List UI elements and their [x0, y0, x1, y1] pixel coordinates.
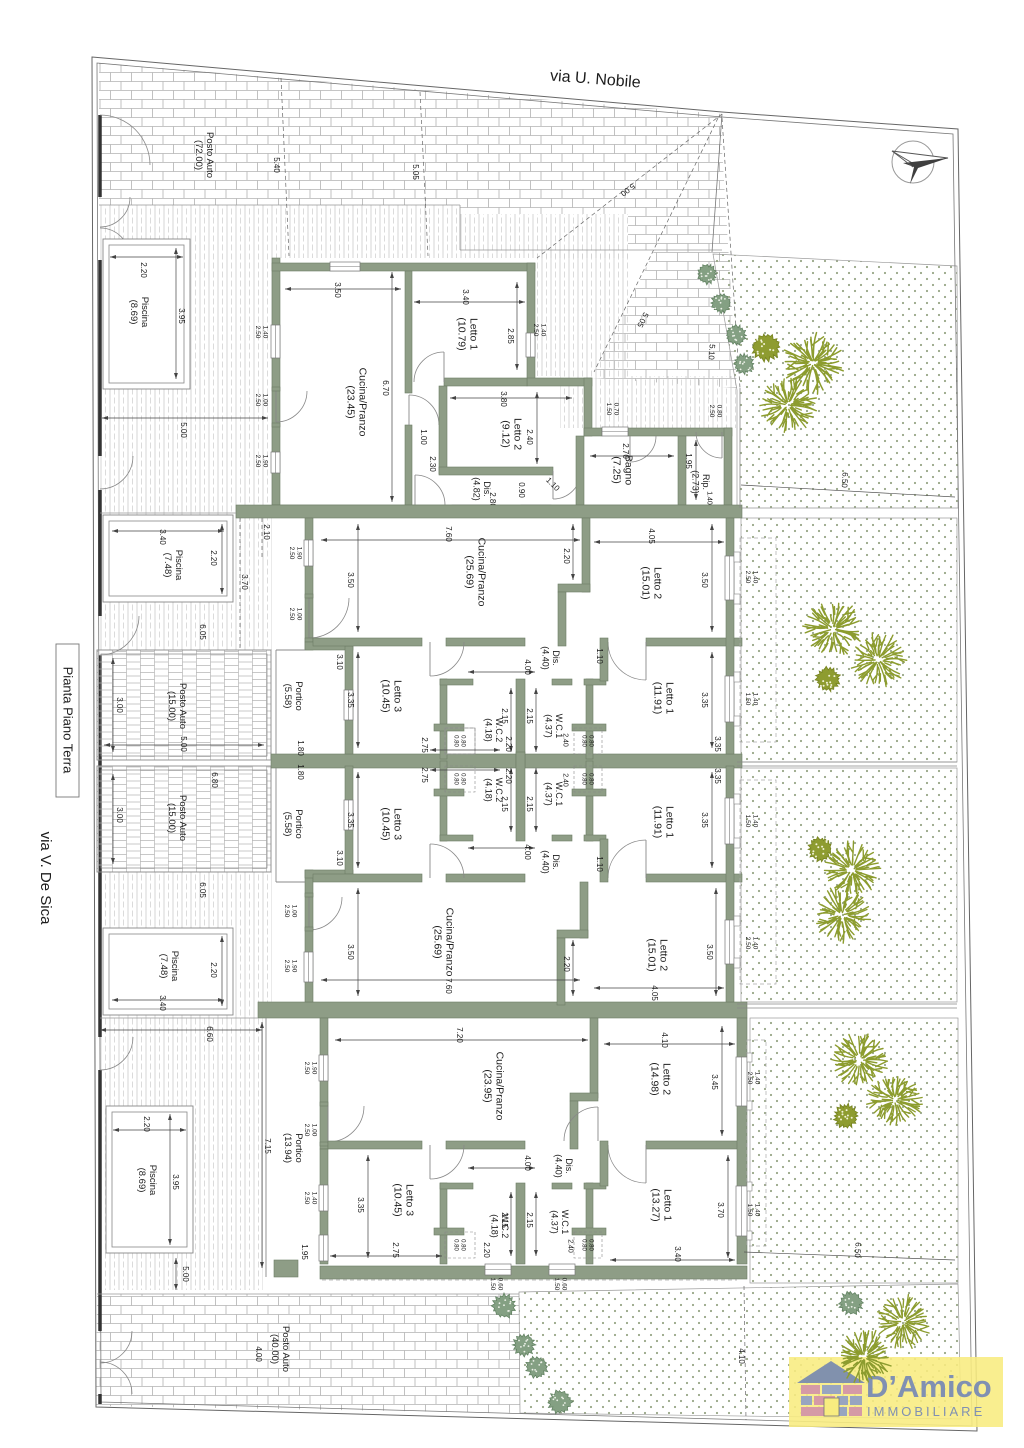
svg-text:2.15: 2.15 [525, 796, 534, 812]
svg-text:(40.00): (40.00) [269, 1334, 280, 1364]
svg-text:Cucina/Pranzo: Cucina/Pranzo [475, 538, 487, 607]
svg-text:Letto 1: Letto 1 [467, 318, 479, 350]
svg-text:(5.58): (5.58) [282, 684, 293, 709]
svg-text:(7.25): (7.25) [610, 456, 622, 483]
svg-text:3.80: 3.80 [499, 391, 508, 407]
svg-text:4.00: 4.00 [523, 1155, 532, 1171]
svg-text:3.35: 3.35 [700, 692, 709, 708]
svg-text:0.60: 0.60 [561, 1278, 568, 1291]
svg-text:2.10: 2.10 [262, 524, 271, 540]
svg-text:Pianta Piano Terra: Pianta Piano Terra [61, 667, 76, 774]
svg-text:1.50: 1.50 [746, 1204, 753, 1217]
svg-text:3.35: 3.35 [346, 692, 355, 708]
svg-text:W.C.1: W.C.1 [560, 1210, 570, 1235]
svg-text:Dis.: Dis. [551, 650, 561, 666]
svg-text:Letto 3: Letto 3 [403, 1184, 415, 1216]
svg-text:1.80: 1.80 [296, 764, 305, 780]
svg-text:(23.95): (23.95) [481, 1069, 493, 1102]
svg-text:2.50: 2.50 [283, 905, 290, 918]
svg-text:1.00: 1.00 [291, 905, 298, 918]
svg-text:2.75: 2.75 [391, 1242, 400, 1258]
svg-text:(72.00): (72.00) [193, 140, 204, 170]
svg-text:2.20: 2.20 [482, 1242, 491, 1258]
svg-text:1.40: 1.40 [262, 326, 269, 339]
svg-text:3.40: 3.40 [461, 289, 470, 305]
svg-text:1.00: 1.00 [262, 394, 269, 407]
svg-text:3.10: 3.10 [335, 654, 344, 670]
svg-text:5.10: 5.10 [707, 344, 717, 361]
svg-text:(23.45): (23.45) [344, 385, 356, 418]
svg-text:Letto 1: Letto 1 [663, 806, 675, 838]
svg-text:2.50: 2.50 [283, 960, 290, 973]
svg-text:1.40: 1.40 [752, 693, 759, 706]
svg-text:2.15: 2.15 [525, 708, 534, 724]
svg-text:2.50: 2.50 [532, 324, 539, 337]
svg-text:7.60: 7.60 [444, 978, 453, 994]
svg-text:1.90: 1.90 [311, 1062, 318, 1075]
svg-text:IMMOBILIARE: IMMOBILIARE [867, 1404, 985, 1419]
svg-text:Portico: Portico [293, 681, 304, 711]
svg-text:3.50: 3.50 [705, 944, 714, 960]
svg-text:(13.94): (13.94) [282, 1133, 293, 1163]
svg-text:2.20: 2.20 [504, 768, 513, 784]
svg-text:1.40: 1.40 [752, 937, 759, 950]
svg-text:(10.79): (10.79) [455, 317, 467, 350]
svg-text:0.70: 0.70 [613, 403, 620, 416]
svg-text:1.90: 1.90 [291, 960, 298, 973]
svg-text:1.00: 1.00 [419, 429, 428, 445]
svg-text:2.15: 2.15 [525, 1212, 534, 1228]
svg-text:3.70: 3.70 [240, 574, 249, 590]
svg-text:Dis.: Dis. [551, 854, 561, 870]
svg-text:1.00: 1.00 [311, 1124, 318, 1137]
svg-text:2.20: 2.20 [504, 736, 513, 752]
svg-text:(10.45): (10.45) [391, 1183, 403, 1216]
svg-text:(25.69): (25.69) [431, 925, 443, 958]
svg-text:2.20: 2.20 [562, 956, 571, 972]
svg-text:6.05: 6.05 [198, 882, 207, 898]
svg-text:(11.91): (11.91) [651, 682, 663, 715]
svg-text:(5.58): (5.58) [282, 812, 293, 837]
svg-text:Portico: Portico [293, 809, 304, 839]
svg-text:(15.00): (15.00) [166, 691, 177, 721]
svg-text:via V. De Sica: via V. De Sica [37, 832, 54, 925]
svg-text:(4.40): (4.40) [541, 646, 551, 670]
svg-text:Piscina: Piscina [173, 550, 184, 581]
svg-text:(11.91): (11.91) [651, 806, 663, 839]
svg-text:3.35: 3.35 [700, 812, 709, 828]
svg-text:2.75: 2.75 [420, 767, 429, 783]
svg-text:0.80: 0.80 [459, 735, 465, 747]
svg-text:5.00: 5.00 [179, 736, 188, 752]
svg-text:2.50: 2.50 [303, 1124, 310, 1137]
svg-text:2.50: 2.50 [254, 455, 261, 468]
svg-text:2.50: 2.50 [708, 405, 715, 418]
svg-text:(4.18): (4.18) [484, 778, 494, 802]
svg-text:0.80: 0.80 [587, 1239, 593, 1251]
svg-text:2.40: 2.40 [562, 733, 569, 747]
svg-text:Posto Auto: Posto Auto [177, 683, 188, 729]
svg-text:2.50: 2.50 [254, 326, 261, 339]
svg-text:5.00: 5.00 [179, 422, 188, 438]
svg-text:6.70: 6.70 [381, 380, 390, 396]
svg-text:1.40: 1.40 [540, 324, 547, 337]
svg-text:2.20: 2.20 [209, 550, 218, 566]
svg-text:Rip.: Rip. [701, 474, 711, 490]
svg-text:0.90: 0.90 [517, 482, 526, 498]
svg-text:1.40: 1.40 [754, 1204, 761, 1217]
svg-text:5.05: 5.05 [411, 164, 420, 180]
svg-text:(14.98): (14.98) [648, 1062, 660, 1095]
svg-text:1.90: 1.90 [296, 547, 303, 560]
svg-text:(10.45): (10.45) [379, 679, 391, 712]
svg-text:7.20: 7.20 [455, 1027, 464, 1043]
svg-text:3.10: 3.10 [335, 850, 344, 866]
svg-text:2.50: 2.50 [288, 547, 295, 560]
svg-text:3.95: 3.95 [171, 1174, 180, 1190]
svg-text:6.60: 6.60 [205, 1026, 214, 1042]
svg-text:4.00: 4.00 [523, 659, 532, 675]
svg-text:Letto 3: Letto 3 [391, 808, 403, 840]
svg-text:6.50: 6.50 [840, 472, 850, 489]
svg-text:2.40: 2.40 [525, 429, 534, 445]
svg-text:Letto 1: Letto 1 [661, 1189, 673, 1221]
svg-text:5.00: 5.00 [181, 1266, 190, 1282]
svg-text:1.10: 1.10 [595, 856, 604, 872]
svg-text:(4.18): (4.18) [484, 718, 494, 742]
svg-text:(4.37): (4.37) [544, 714, 554, 738]
svg-text:6.05: 6.05 [198, 624, 207, 640]
svg-text:3.00: 3.00 [115, 697, 124, 713]
svg-text:1.95: 1.95 [300, 1244, 309, 1260]
svg-text:(25.69): (25.69) [463, 555, 475, 588]
svg-text:0.80: 0.80 [587, 773, 593, 785]
svg-text:3.50: 3.50 [346, 572, 355, 588]
svg-text:0.80: 0.80 [587, 735, 593, 747]
svg-text:2.20: 2.20 [562, 548, 571, 564]
svg-text:7.60: 7.60 [444, 526, 453, 542]
svg-text:(8.69): (8.69) [136, 1168, 147, 1193]
svg-text:2.50: 2.50 [303, 1192, 310, 1205]
svg-text:2.50: 2.50 [303, 1062, 310, 1075]
svg-text:2.15: 2.15 [500, 796, 509, 812]
svg-text:1.50: 1.50 [553, 1278, 560, 1291]
svg-text:7.15: 7.15 [263, 1138, 272, 1154]
svg-text:3.00: 3.00 [115, 807, 124, 823]
svg-text:6.50: 6.50 [853, 1242, 863, 1259]
svg-text:4.10: 4.10 [737, 1348, 746, 1364]
svg-text:3.50: 3.50 [346, 944, 355, 960]
svg-text:4.00: 4.00 [254, 1346, 263, 1362]
svg-text:2.15: 2.15 [500, 708, 509, 724]
svg-text:3.40: 3.40 [158, 529, 167, 545]
svg-text:1.95: 1.95 [684, 453, 693, 469]
svg-text:Dis.: Dis. [564, 1158, 574, 1174]
svg-text:1.00: 1.00 [296, 608, 303, 621]
svg-text:Piscina: Piscina [139, 297, 150, 328]
svg-text:1.10: 1.10 [595, 648, 604, 664]
svg-text:Cucina/Pranzo: Cucina/Pranzo [356, 368, 368, 437]
svg-text:3.45: 3.45 [710, 1074, 719, 1090]
svg-text:3.40: 3.40 [673, 1246, 682, 1262]
svg-text:0.60: 0.60 [497, 1278, 504, 1291]
svg-text:1.40: 1.40 [754, 1072, 761, 1085]
svg-text:(4.40): (4.40) [541, 850, 551, 874]
svg-text:(8.69): (8.69) [128, 300, 139, 325]
svg-text:5.40: 5.40 [272, 157, 281, 173]
svg-text:(4.18): (4.18) [490, 1214, 500, 1238]
svg-text:1.80: 1.80 [296, 740, 305, 756]
svg-text:2.75: 2.75 [420, 737, 429, 753]
svg-text:1.40: 1.40 [311, 1192, 318, 1205]
svg-text:4.00: 4.00 [523, 844, 532, 860]
svg-text:1.50: 1.50 [744, 815, 751, 828]
svg-text:1.90: 1.90 [262, 455, 269, 468]
svg-text:4.10: 4.10 [660, 1032, 669, 1048]
svg-text:2.40: 2.40 [567, 1239, 574, 1253]
svg-text:0.80: 0.80 [459, 1239, 465, 1251]
svg-text:0.80: 0.80 [581, 773, 587, 785]
svg-text:3.35: 3.35 [713, 736, 722, 752]
svg-text:Posto Auto: Posto Auto [204, 132, 215, 178]
svg-text:(9.12): (9.12) [499, 420, 511, 447]
svg-text:0.80: 0.80 [716, 405, 723, 418]
svg-text:2.70: 2.70 [621, 443, 630, 459]
svg-text:0.80: 0.80 [453, 735, 459, 747]
svg-text:2.50: 2.50 [254, 394, 261, 407]
svg-text:(7.48): (7.48) [158, 954, 169, 979]
svg-text:3.50: 3.50 [333, 282, 342, 298]
svg-text:3.35: 3.35 [713, 768, 722, 784]
svg-text:(15.00): (15.00) [166, 803, 177, 833]
svg-text:0.80: 0.80 [453, 1239, 459, 1251]
svg-text:Posto Auto: Posto Auto [177, 795, 188, 841]
svg-text:(13.27): (13.27) [649, 1188, 661, 1221]
svg-text:Letto 3: Letto 3 [391, 680, 403, 712]
svg-text:Cucina/Pranzo: Cucina/Pranzo [443, 908, 455, 977]
svg-text:2.50: 2.50 [744, 937, 751, 950]
svg-text:D’Amico: D’Amico [866, 1369, 992, 1404]
svg-text:Piscina: Piscina [169, 951, 180, 982]
svg-text:Letto 2: Letto 2 [660, 1063, 672, 1095]
svg-text:2.50: 2.50 [746, 1072, 753, 1085]
svg-text:(4.37): (4.37) [550, 1210, 560, 1234]
svg-text:2.20: 2.20 [142, 1116, 151, 1132]
svg-text:(4.40): (4.40) [554, 1154, 564, 1178]
svg-text:Letto 1: Letto 1 [663, 682, 675, 714]
svg-text:3.95: 3.95 [177, 308, 186, 324]
svg-text:4.05: 4.05 [650, 985, 659, 1001]
svg-text:Letto 2: Letto 2 [511, 418, 523, 450]
svg-text:2.20: 2.20 [209, 962, 218, 978]
svg-text:2.30: 2.30 [428, 456, 437, 472]
svg-text:3.35: 3.35 [356, 1197, 365, 1213]
svg-text:2.50: 2.50 [744, 571, 751, 584]
svg-text:0.80: 0.80 [581, 1239, 587, 1251]
svg-text:(15.01): (15.01) [639, 566, 651, 599]
svg-text:2.85: 2.85 [506, 328, 515, 344]
svg-text:1.40: 1.40 [752, 571, 759, 584]
svg-text:1.50: 1.50 [489, 1278, 496, 1291]
svg-text:Cucina/Pranzo: Cucina/Pranzo [493, 1052, 505, 1121]
svg-text:3.40: 3.40 [158, 995, 167, 1011]
svg-text:Letto 2: Letto 2 [651, 567, 663, 599]
svg-text:3.70: 3.70 [716, 1202, 725, 1218]
svg-text:6.80: 6.80 [210, 772, 219, 788]
svg-text:Bagno: Bagno [622, 455, 634, 486]
svg-text:1.50: 1.50 [744, 693, 751, 706]
svg-text:2.15: 2.15 [500, 1212, 509, 1228]
svg-text:3.35: 3.35 [346, 812, 355, 828]
svg-text:0.80: 0.80 [581, 735, 587, 747]
svg-text:4.05: 4.05 [647, 528, 656, 544]
svg-text:Letto 2: Letto 2 [657, 939, 669, 971]
svg-text:Portico: Portico [293, 1133, 304, 1163]
svg-text:2.40: 2.40 [562, 773, 569, 787]
svg-text:1.40: 1.40 [706, 491, 713, 505]
svg-text:Posto Auto: Posto Auto [280, 1326, 291, 1372]
svg-text:(4.37): (4.37) [544, 782, 554, 806]
svg-text:1.50: 1.50 [605, 403, 612, 416]
svg-text:(10.45): (10.45) [379, 807, 391, 840]
svg-text:2.20: 2.20 [139, 262, 148, 278]
svg-text:(4.82): (4.82) [472, 477, 482, 501]
svg-text:1.40: 1.40 [752, 815, 759, 828]
svg-text:(15.01): (15.01) [645, 938, 657, 971]
svg-text:(7.48): (7.48) [162, 553, 173, 578]
svg-text:3.50: 3.50 [700, 572, 709, 588]
svg-text:0.80: 0.80 [453, 773, 459, 785]
svg-text:0.80: 0.80 [459, 773, 465, 785]
svg-text:2.50: 2.50 [288, 608, 295, 621]
svg-text:Piscina: Piscina [147, 1165, 158, 1196]
